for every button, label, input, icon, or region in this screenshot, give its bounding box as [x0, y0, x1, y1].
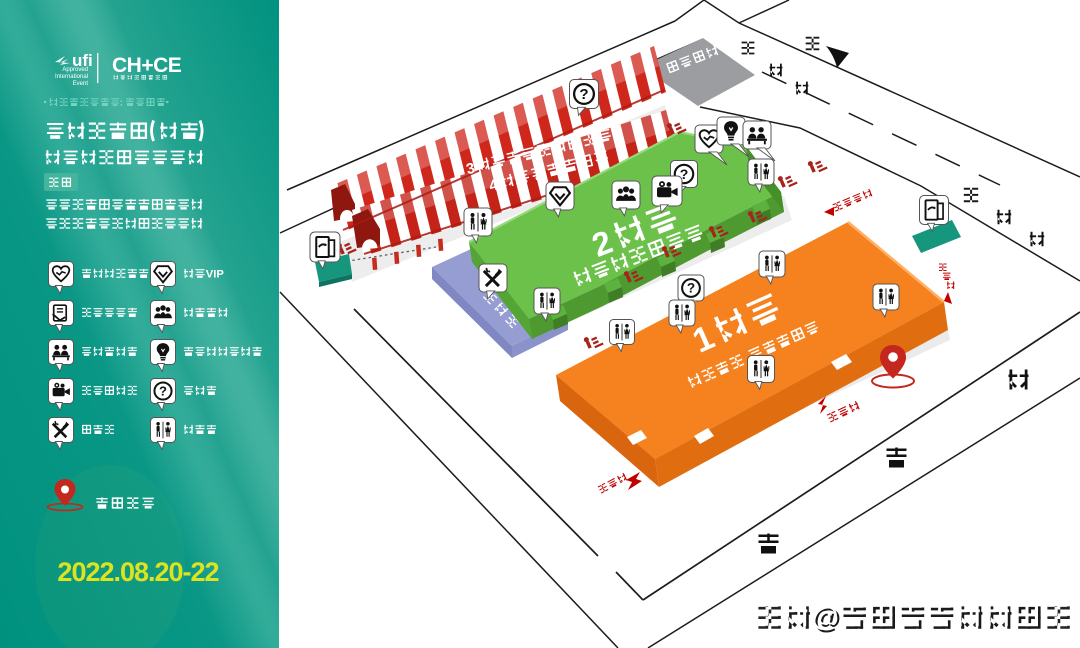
svg-text:Event: Event	[73, 81, 89, 87]
svg-text:International: International	[55, 74, 88, 80]
svg-text:2022.08.20-22: 2022.08.20-22	[57, 557, 218, 587]
svg-text:CH+CE: CH+CE	[112, 54, 182, 77]
svg-text:@: @	[811, 601, 838, 632]
svg-text:Approved: Approved	[62, 67, 88, 73]
svg-text:VIP: VIP	[206, 269, 225, 281]
